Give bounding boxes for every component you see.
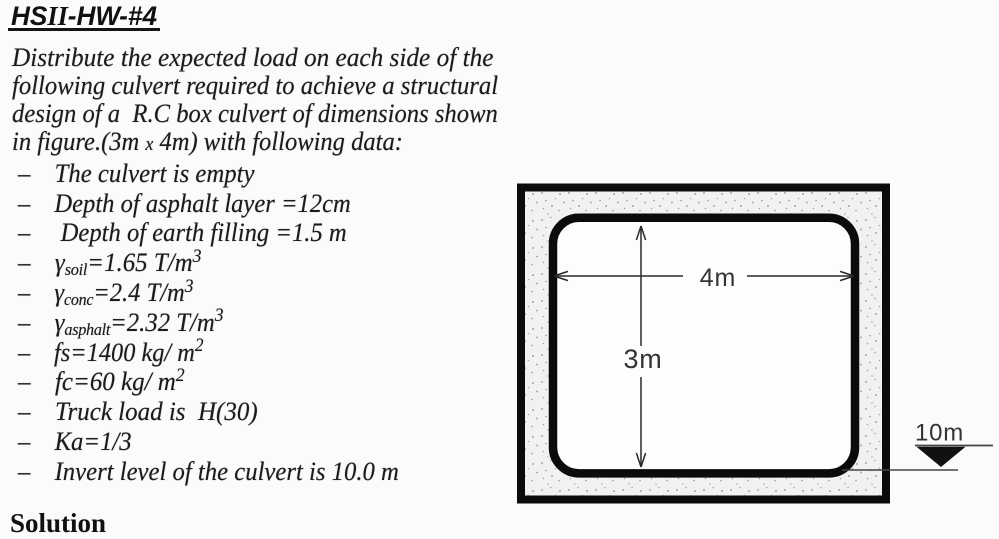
svg-text:3m: 3m xyxy=(623,344,662,374)
svg-text:10m: 10m xyxy=(915,420,964,447)
svg-text:4m: 4m xyxy=(700,264,737,292)
